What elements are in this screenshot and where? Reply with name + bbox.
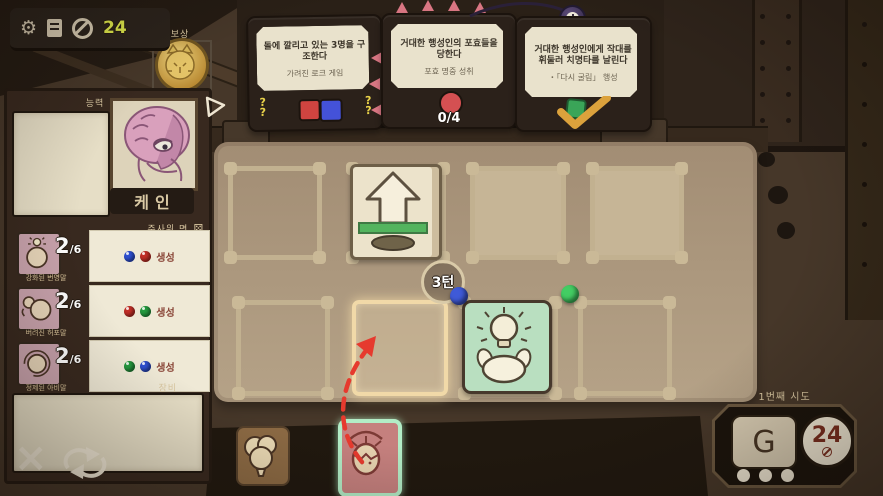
slot-corner <box>321 296 334 309</box>
action-label: 생성 <box>156 359 174 374</box>
right-wall-pillar <box>845 0 883 320</box>
orb-dot <box>124 251 135 262</box>
hand-card-hatchling-selected[interactable] <box>338 419 402 496</box>
journal-lines <box>50 23 59 33</box>
quest-note: 거대한 행성인의 포효들을 당한다 포효 명중 성취 <box>391 24 507 92</box>
quest-title: 거대한 행성인에게 작대를 휘둘러 치명타를 날린다 <box>531 45 635 68</box>
game-screen: ⚙ 24 보상 돌에 깔리고 있는 3명을 구조한다 가려진 로크 게임 ? ?… <box>0 0 883 496</box>
slot-corner <box>663 296 676 309</box>
slot-corner <box>313 162 326 175</box>
face-label: 강화된 번영말 <box>7 273 85 283</box>
small-coin-slash <box>823 448 831 456</box>
reroll-panel-inner: G 24 <box>715 407 854 485</box>
wall-knob <box>768 186 788 204</box>
board-slot[interactable] <box>578 300 672 396</box>
hand-card-egg[interactable] <box>236 426 290 486</box>
question-icon: ? <box>260 108 267 118</box>
ability-box <box>12 111 110 217</box>
action-label: 생성 <box>156 249 174 264</box>
board-slot[interactable] <box>228 166 322 260</box>
gear-icon[interactable]: ⚙ <box>20 19 37 38</box>
slot-corner <box>466 251 479 264</box>
red-token <box>298 99 320 121</box>
portrait-frame[interactable] <box>110 98 198 191</box>
small-coin-icon <box>822 447 832 457</box>
quest-card-critical[interactable]: 거대한 행성인에게 작대를 휘둘러 치명타를 날린다 ・「다시 굴림」 행성 <box>515 16 652 132</box>
coin-counter: 24 <box>103 18 127 38</box>
green-orb <box>561 285 579 303</box>
slot-corner <box>224 251 237 264</box>
quest-subtitle: ・「다시 굴림」 행성 <box>548 72 617 83</box>
egg-swirl-icon <box>19 344 55 380</box>
slot-corner <box>663 387 676 400</box>
arrow-card[interactable] <box>350 164 442 260</box>
reroll-die-glyph: G <box>752 425 775 460</box>
quest-card-roars[interactable]: 거대한 행성인의 포효들을 당한다 포효 명중 성취 0/4 <box>381 13 517 129</box>
quest-note: 거대한 행성인에게 작대를 휘둘러 치명타를 날린다 ・「다시 굴림」 행성 <box>525 27 641 101</box>
wall-knob <box>777 222 795 239</box>
reroll-coin: 24 <box>800 414 854 468</box>
dice-face-row[interactable]: 2/6 생성 버려진 허포말 <box>7 284 209 336</box>
spike-icon <box>422 0 434 11</box>
blue-orb <box>450 287 468 305</box>
coin-icon <box>72 18 93 39</box>
quest-title: 돌에 깔리고 있는 3명을 구조한다 <box>262 40 366 64</box>
rivet-dots <box>862 22 867 27</box>
quest-title: 거대한 행성인의 포효들을 당한다 <box>397 39 501 62</box>
action-label: 생성 <box>156 304 174 319</box>
slot-corner <box>557 162 570 175</box>
name-plate: 케인 <box>110 188 194 214</box>
orb-dot <box>140 251 151 262</box>
character-name: 케인 <box>128 189 175 213</box>
face-count: 2/6 <box>55 234 81 258</box>
refresh-icon[interactable] <box>58 444 112 482</box>
kane-portrait <box>113 101 195 188</box>
checkmark-icon <box>555 96 615 130</box>
door-pillar <box>752 0 802 142</box>
journal-icon[interactable] <box>47 19 62 37</box>
wall-knob <box>758 152 775 167</box>
egg-wing-icon <box>19 289 55 325</box>
face-count: 2/6 <box>55 344 81 368</box>
quest-card-rescue[interactable]: 돌에 깔리고 있는 3명을 구조한다 가려진 로크 게임 ? ? ? ? <box>246 14 384 132</box>
target-tile-highlight[interactable] <box>352 300 448 396</box>
face-result-panel: 생성 <box>89 285 210 337</box>
spike-icon <box>448 0 460 11</box>
orb-dot <box>140 306 151 317</box>
up-arrow-icon <box>353 167 433 251</box>
lightbulb-icon <box>465 303 543 385</box>
slot-corner <box>321 387 334 400</box>
slot-corner <box>232 387 245 400</box>
pip-dot <box>737 469 750 482</box>
orb-dot <box>124 306 135 317</box>
collapse-arrow-icon[interactable] <box>204 94 228 118</box>
slot-corner <box>675 162 688 175</box>
face-count: 2/6 <box>55 289 81 313</box>
close-button[interactable]: × <box>14 438 48 478</box>
egg-bulb-icon <box>19 234 55 270</box>
slot-corner <box>313 251 326 264</box>
slot-corner <box>466 162 479 175</box>
orb-dot <box>124 361 135 372</box>
board-slot[interactable] <box>236 300 330 396</box>
egg-sketch-icon <box>238 428 284 480</box>
reroll-die-button[interactable]: G <box>731 415 797 469</box>
slot-corner <box>586 162 599 175</box>
attempt-label: 1번째 시도 <box>712 388 857 403</box>
orb-dot <box>140 361 151 372</box>
quest-progress: 0/4 <box>383 111 515 126</box>
character-panel: 능력 ≡ 케인 주사위 면 ⚄ <box>4 88 212 484</box>
hatchling-sketch-icon <box>342 423 390 485</box>
idea-card[interactable] <box>462 300 552 394</box>
blue-token <box>319 99 342 122</box>
quest-subtitle: 포효 명중 성취 <box>424 66 473 77</box>
quest-note: 돌에 깔리고 있는 3명을 구조한다 가려진 로크 게임 <box>256 25 373 95</box>
dice-face-row[interactable]: 2/6 생성 강화된 번영말 <box>7 229 209 281</box>
slot-corner <box>586 251 599 264</box>
face-result-panel: 생성 <box>89 230 210 282</box>
spike-icon <box>396 2 408 13</box>
hud-bar: ⚙ 24 <box>10 8 170 51</box>
slot-corner <box>574 387 587 400</box>
coin-slash <box>75 20 90 35</box>
slot-corner <box>224 162 237 175</box>
board-slot[interactable] <box>470 166 566 260</box>
slot-corner <box>675 251 688 264</box>
quest-marks-left: ? ? <box>259 98 266 118</box>
quest-subtitle: 가려진 로크 게임 <box>287 68 344 80</box>
board-slot[interactable] <box>590 166 684 260</box>
slot-corner <box>232 296 245 309</box>
reroll-panel[interactable]: G 24 <box>712 404 857 488</box>
spike-icon <box>369 78 380 90</box>
rivet-dots <box>760 14 765 19</box>
slot-corner <box>557 251 570 264</box>
face-label: 버려진 허포말 <box>7 328 85 338</box>
reroll-coin-value: 24 <box>812 425 843 447</box>
